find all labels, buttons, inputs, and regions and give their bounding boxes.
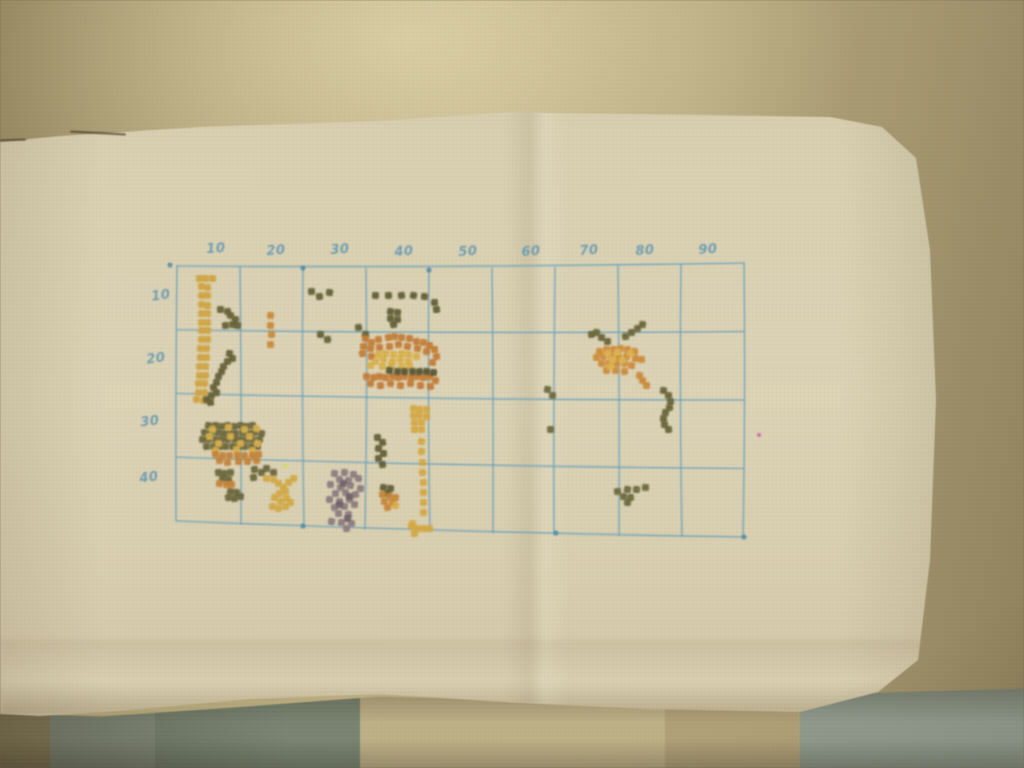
- cross-stitch-center-yellow-column: [419, 478, 427, 486]
- cross-stitch-top-row-olive: [410, 291, 418, 299]
- grid-tick-mark: [167, 262, 172, 267]
- cross-stitch-basket-orange-rows: [216, 457, 223, 464]
- cross-stitch-crown-orange: [427, 382, 435, 390]
- cross-stitch-flower-orange-petals: [628, 361, 636, 369]
- grid-ruler-number: 20: [146, 350, 167, 367]
- grid-line: [365, 268, 367, 528]
- cross-stitch-check-motif-olive: [269, 468, 276, 475]
- cross-stitch-crown-olive-band: [393, 368, 401, 376]
- cross-stitch-basket-orange-rows: [223, 458, 231, 466]
- cross-stitch-crown-orange: [417, 381, 425, 389]
- cross-stitch-center-yellow-column: [417, 426, 425, 434]
- cross-stitch-flower-orange-petals: [620, 367, 628, 375]
- cross-stitch-check-motif-yellow: [282, 487, 289, 494]
- grid-line: [428, 269, 430, 531]
- cross-stitch-basket-yellow-speckles: [240, 426, 247, 433]
- cross-stitch-crown-orange: [366, 345, 374, 353]
- cross-stitch-mauve-cluster-dark: [336, 501, 343, 508]
- grid-ruler-number: 10: [206, 241, 226, 257]
- cross-stitch-basket-yellow-speckles: [246, 432, 253, 439]
- pink-lint-speck: [757, 433, 761, 437]
- cross-stitch-top-row-olive: [397, 292, 405, 300]
- cross-stitch-crown-orange: [407, 380, 414, 387]
- cross-stitch-mauve-cluster-dark: [339, 479, 347, 487]
- grid-ruler-number: 40: [394, 244, 414, 260]
- grid-tick-mark: [300, 523, 305, 528]
- cross-stitch-flower-curved-stem: [664, 425, 672, 433]
- cross-stitch-crown-orange: [395, 341, 403, 349]
- cross-stitch-mauve-cluster: [325, 496, 333, 504]
- cross-stitch-mauve-cluster: [328, 517, 336, 525]
- grid-tick-mark: [741, 534, 746, 539]
- grid-ruler-number: 90: [698, 242, 718, 258]
- grid-ruler-number: 30: [140, 413, 161, 430]
- grid-ruler-number: 40: [139, 469, 160, 486]
- cross-stitch-scattered-olive-crosses: [326, 289, 334, 297]
- cross-stitch-mauve-cluster-dark: [344, 515, 352, 523]
- cross-stitch-bottom-right-olive-cluster: [623, 498, 631, 506]
- cross-stitch-basket-yellow-speckles: [224, 423, 232, 431]
- cross-stitch-small-orange-dash: [267, 322, 274, 329]
- cross-stitch-crown-orange: [414, 345, 422, 353]
- cross-stitch-mauve-cluster: [354, 475, 361, 482]
- cross-stitch-basket-yellow-speckles: [252, 425, 259, 432]
- cross-stitch-crown-orange: [397, 381, 405, 389]
- cross-stitch-small-orange-dash: [268, 331, 275, 338]
- cross-stitch-top-row-olive: [432, 306, 440, 314]
- grid-ruler-number: 20: [266, 243, 286, 259]
- grid-line: [177, 394, 744, 401]
- cross-stitch-left-yellow-ladder: [204, 318, 212, 326]
- grid-line: [177, 521, 744, 537]
- cross-stitch-left-yellow-ladder: [204, 310, 211, 317]
- cross-stitch-top-row-olive: [431, 298, 438, 305]
- cross-stitch-flower-olive-leaves: [628, 329, 635, 336]
- cross-stitch-flower-orange-petals: [643, 382, 650, 389]
- cross-stitch-crown-yellow: [378, 362, 386, 370]
- cross-stitch-center-yellow-column: [420, 509, 427, 516]
- grid-ruler-number: 80: [635, 243, 655, 259]
- cross-stitch-basket-orange-rows: [244, 458, 251, 465]
- cross-stitch-check-motif-olive: [250, 473, 258, 481]
- cross-stitch-basket-yellow-speckles: [215, 440, 222, 447]
- cross-stitch-crown-orange: [429, 359, 436, 366]
- cross-stitch-center-yellow-column: [420, 499, 427, 506]
- cross-stitch-check-motif-yellow: [287, 499, 294, 506]
- cross-stitch-center-yellow-column: [419, 468, 427, 476]
- grid-ruler-number: 70: [579, 243, 599, 259]
- cross-stitch-fold-line-olive-bits: [547, 426, 554, 433]
- grid-line: [177, 330, 744, 333]
- grid-line: [302, 268, 304, 527]
- cross-stitch-crown-olive-band: [430, 369, 437, 376]
- cross-stitch-left-yellow-ladder: [202, 362, 210, 370]
- cross-stitch-scattered-olive-crosses: [324, 336, 331, 343]
- grid-tick-mark: [300, 265, 305, 270]
- cross-stitch-center-yellow-column: [419, 459, 426, 466]
- grid-ruler-number: 10: [151, 287, 172, 304]
- cross-stitch-scattered-olive-crosses: [355, 323, 363, 331]
- cross-stitch-crown-yellow: [412, 353, 419, 360]
- cross-stitch-flower-yellow-highlights: [618, 357, 625, 364]
- grid-ruler-number: 30: [330, 242, 350, 258]
- green-lint-speck: [283, 464, 287, 468]
- cross-stitch-center-yellow-column: [419, 488, 427, 496]
- cross-stitch-crown-orange: [431, 346, 438, 353]
- cross-stitch-check-motif-yellow: [290, 475, 297, 482]
- cross-stitch-left-yellow-ladder: [204, 336, 212, 344]
- cross-stitch-bottom-right-olive-cluster: [633, 486, 641, 494]
- cross-stitch-left-yellow-ladder: [208, 275, 215, 282]
- cross-stitch-flower-yellow-highlights: [626, 350, 634, 358]
- cross-stitch-crown-yellow: [367, 362, 375, 370]
- cross-stitch-top-row-olive: [421, 293, 428, 300]
- cross-stitch-left-yellow-ladder: [204, 301, 212, 309]
- cross-stitch-scattered-olive-crosses: [308, 288, 315, 295]
- cross-stitch-basket-orange-rows: [235, 457, 243, 465]
- grid-line: [177, 263, 744, 267]
- grid-ruler-number: 60: [521, 244, 541, 260]
- cross-stitch-mauve-cluster: [332, 490, 339, 497]
- cross-stitch-mauve-cluster: [334, 510, 341, 517]
- cross-stitch-basket-orange-rows: [226, 452, 233, 459]
- cross-stitch-fold-line-olive-bits: [548, 391, 555, 398]
- cross-stitch-crown-orange: [423, 348, 430, 355]
- cross-stitch-crown-orange: [406, 335, 413, 342]
- cross-stitch-center-yellow-column: [426, 525, 433, 532]
- cross-stitch-crown-orange: [398, 334, 405, 341]
- cross-stitch-crown-orange: [367, 380, 374, 387]
- cross-stitch-basket-orange-rows: [252, 457, 259, 464]
- cross-stitch-mid-blob-orange: [383, 503, 391, 511]
- cross-stitch-mid-blob-yellow-dots: [391, 502, 399, 510]
- photo-content: 102030405060708090 10203040: [0, 0, 1024, 768]
- cross-stitch-crown-olive-band: [401, 368, 408, 375]
- cross-stitch-below-basket-olive: [224, 493, 232, 501]
- cross-stitch-top-row-olive: [393, 308, 401, 316]
- photo-scene: 102030405060708090 10203040: [0, 0, 1024, 768]
- cross-stitch-top-row-olive: [389, 321, 397, 329]
- grid-tick-mark: [426, 267, 431, 272]
- cross-stitch-left-olive-squiggles: [206, 399, 214, 407]
- cross-stitch-mid-olive-verticals: [378, 461, 386, 469]
- grid-ruler-number: 50: [458, 244, 478, 260]
- cross-stitch-mauve-cluster: [351, 501, 358, 508]
- cross-stitch-below-basket-olive: [237, 493, 244, 500]
- cross-stitch-mauve-cluster: [341, 468, 348, 475]
- cross-stitch-left-yellow-ladder: [204, 283, 212, 291]
- cross-stitch-bottom-right-olive-cluster: [642, 484, 649, 491]
- grid-line: [492, 268, 493, 533]
- cross-stitch-mauve-cluster: [327, 481, 334, 488]
- cross-stitch-top-row-olive: [372, 292, 379, 299]
- cross-stitch-left-yellow-ladder: [201, 380, 209, 388]
- cross-stitch-center-yellow-column: [422, 405, 430, 413]
- cross-stitch-crown-orange: [376, 381, 384, 389]
- cross-stitch-basket-yellow-speckles: [206, 432, 214, 440]
- grid-tick-mark: [553, 530, 558, 535]
- cross-stitch-left-yellow-ladder: [204, 292, 211, 299]
- grid-line: [554, 267, 555, 534]
- stitch-counting-grid: [0, 0, 1024, 768]
- cross-stitch-left-yellow-ladder: [203, 354, 211, 362]
- cross-stitch-crown-orange: [375, 336, 382, 343]
- cross-stitch-left-yellow-ladder: [204, 327, 211, 334]
- cross-stitch-top-row-olive: [385, 291, 392, 298]
- cross-stitch-flower-olive-leaves: [603, 337, 610, 344]
- cross-stitch-center-yellow-column: [411, 529, 419, 537]
- cross-stitch-left-yellow-ladder: [202, 371, 209, 378]
- cross-stitch-below-basket-orange: [228, 480, 235, 487]
